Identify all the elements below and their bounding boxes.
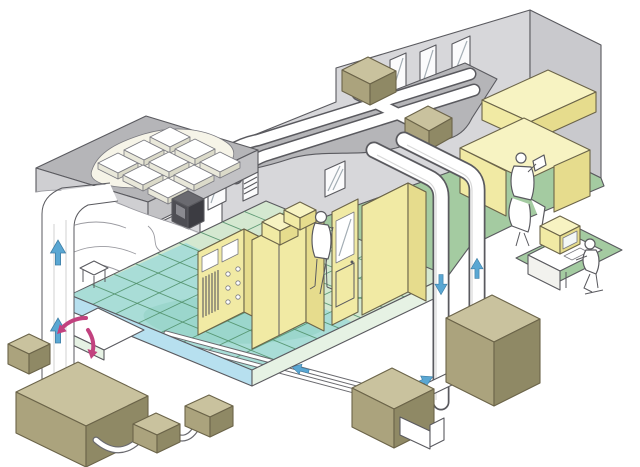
cabinet-knob [226,286,230,290]
door-handle [351,261,354,264]
illustration-canvas [0,0,640,467]
air-shower-door [332,199,358,325]
cleanroom-hvac-diagram [0,0,640,467]
tall-ahu [446,295,540,406]
cabinet-knob [226,300,230,304]
operator-body [312,223,331,259]
operator-head [316,212,327,223]
office-worker-body [511,166,534,200]
cabinet-knob [236,295,240,299]
office-worker-head [516,153,526,163]
monitor-operator-head [585,239,595,249]
cabinet-knob [226,272,230,276]
equipment-booth [362,183,426,315]
wall-control-box [172,191,204,229]
cabinet-knob [236,267,240,271]
cabinet-knob [236,281,240,285]
